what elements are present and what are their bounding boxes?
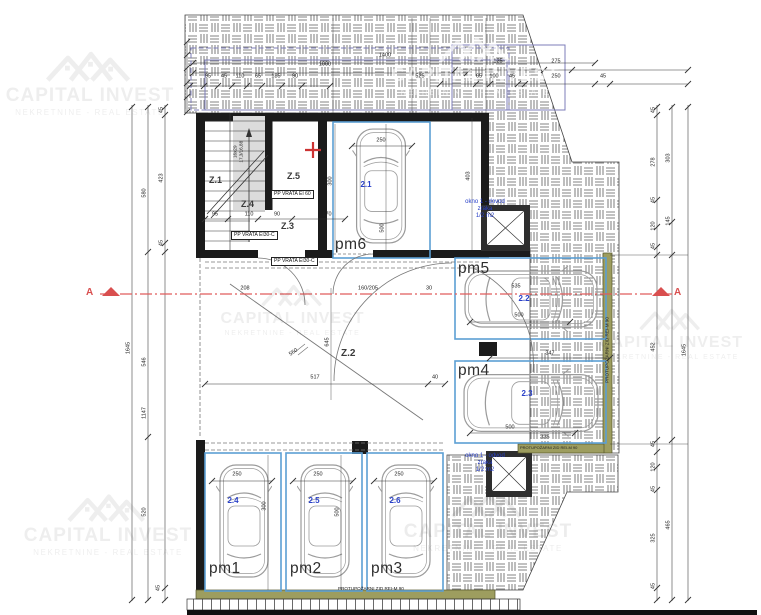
dimension-label: 1645 <box>126 342 132 354</box>
watermark: CAPITAL INVEST NEKRETNINE - REAL ESTATE <box>18 478 198 557</box>
dimension-label: 335 <box>540 435 549 441</box>
dimension-label: 403 <box>466 171 472 180</box>
watermark-title: CAPITAL INVEST <box>18 526 198 547</box>
dimension-label: 303 <box>666 153 672 162</box>
walkway <box>187 599 757 615</box>
dimension-label: 65 <box>255 74 261 80</box>
dimension-label: 278 <box>651 157 657 166</box>
section-marker-right <box>652 287 670 296</box>
dimension-label: 145 <box>666 216 672 225</box>
parking-label-pm6: pm6 <box>335 237 367 253</box>
dimension-label: 45 <box>651 486 657 492</box>
dimension-label: 120 <box>651 221 657 230</box>
dimension-label: 45 <box>600 74 606 80</box>
dimension-label: 250 <box>232 472 241 478</box>
dimension-label: 535 <box>511 284 520 290</box>
dimension-label: 45 <box>651 441 657 447</box>
watermark-subtitle: NEKRETNINE - REAL ESTATE <box>388 89 563 97</box>
window-label-exhaust: okno 1 - odvod zraka 1/2 m2 <box>450 453 520 475</box>
window-label-line: 1/2 m2 <box>450 213 520 220</box>
dimension-label: 275 <box>551 59 560 65</box>
parking-label-pm4: pm4 <box>458 363 490 379</box>
window-label-line: okno 1 - odvod <box>450 453 520 460</box>
room-label-z2: Z.2 <box>341 349 355 359</box>
dimension-label: 347 <box>545 351 554 357</box>
firewall-label-right: PROTUPOŽARNI ZID REI-M 90 <box>606 317 611 383</box>
watermark: CAPITAL INVEST NEKRETNINE - REAL ESTATE <box>205 272 380 337</box>
dimension-label: 65 <box>476 74 482 80</box>
dimension-label: 45 <box>651 243 657 249</box>
watermark-title: CAPITAL INVEST <box>205 310 380 328</box>
floor-plan-canvas: CAPITAL INVEST NEKRETNINE - REAL ESTATE … <box>0 0 761 615</box>
watermark-title: CAPITAL INVEST <box>0 86 180 107</box>
capital-invest-logo-icon <box>636 296 706 332</box>
dimension-label: 452 <box>651 342 657 351</box>
parking-label-pm1: pm1 <box>209 561 241 577</box>
dimension-label: 1147 <box>142 407 148 419</box>
section-letter-left: A <box>86 287 93 298</box>
dimension-label: 125 <box>493 59 502 65</box>
dimension-label: 100 <box>489 74 498 80</box>
capital-invest-logo-icon <box>42 34 138 84</box>
dimension-label: 250 <box>551 74 560 80</box>
watermark: CAPITAL INVEST NEKRETNINE - REAL ESTATE <box>388 22 563 97</box>
dimension-label: 500 <box>505 425 514 431</box>
parking-label-pm2: pm2 <box>290 561 322 577</box>
section-marker-left <box>102 287 120 296</box>
firewall-label-mid: PROTUPOŽARNI ZID REI-M 90 <box>520 446 577 450</box>
watermark-subtitle: NEKRETNINE - REAL ESTATE <box>0 109 180 117</box>
dimension-label: 95 <box>212 212 218 218</box>
dimension-label: 110 <box>236 74 245 80</box>
stairs-label-line: 17,3/16,88 <box>238 121 244 183</box>
stairs-label: 16x29 17,3/16,88 <box>232 121 243 183</box>
watermark-subtitle: NEKRETNINE - REAL ESTATE <box>205 330 380 337</box>
watermark-subtitle: NEKRETNINE - REAL ESTATE <box>398 545 578 553</box>
dimension-label: 90 <box>292 74 298 80</box>
dimension-label: 300 <box>328 176 334 185</box>
room-label-z5: Z.5 <box>287 172 300 181</box>
car-number-label: 2.3 <box>521 390 532 398</box>
car-number-label: 2.6 <box>389 497 400 505</box>
car-number-label: 2.1 <box>360 181 371 189</box>
dimension-label: 45 <box>509 74 515 80</box>
dimension-label: 45 <box>651 197 657 203</box>
dimension-label: 500 <box>514 313 523 319</box>
dimension-label: 465 <box>666 520 672 529</box>
dimension-label: 325 <box>651 533 657 542</box>
window-label-line: 1/2 m2 <box>450 467 520 474</box>
dimension-label: 120 <box>651 462 657 471</box>
parking-label-pm3: pm3 <box>371 561 403 577</box>
door-label-ei30c: PP VRATA EI30-C <box>271 257 318 266</box>
window-label-line: zraka <box>450 460 520 467</box>
column <box>479 342 497 356</box>
dimension-label: 90 <box>274 212 280 218</box>
dimension-label: 1645 <box>682 344 688 356</box>
dimension-label: 160/205 <box>358 286 378 292</box>
dimension-label: 500 <box>380 223 386 232</box>
room-label-z1: Z.1 <box>209 176 222 185</box>
dimension-label: 520 <box>142 507 148 516</box>
dimension-label: 110 <box>245 212 254 218</box>
dimension-label: 500 <box>335 507 341 516</box>
room-label-z4: Z.4 <box>241 200 254 209</box>
watermark: CAPITAL INVEST NEKRETNINE - REAL ESTATE <box>398 478 578 553</box>
dimension-label: 250 <box>313 472 322 478</box>
car-number-label: 2.5 <box>308 497 319 505</box>
dimension-label: 45 <box>159 240 165 246</box>
watermark-subtitle: NEKRETNINE - REAL ESTATE <box>18 549 198 557</box>
capital-invest-logo-icon <box>258 272 328 308</box>
dimension-label: 517 <box>310 375 319 381</box>
dimension-label: 645 <box>325 337 331 346</box>
parking-label-pm5: pm5 <box>458 261 490 277</box>
dimension-label: 45 <box>159 107 165 113</box>
dimension-label: 250 <box>376 138 385 144</box>
dimension-label: 250 <box>394 472 403 478</box>
window-label-supply: okno 1 - dovod zraka 1/2 m2 <box>450 199 520 221</box>
capital-invest-logo-icon <box>448 478 528 520</box>
dimension-label: 45 <box>156 585 162 591</box>
dimension-label: 170 <box>322 212 331 218</box>
dimension-label: 45 <box>651 107 657 113</box>
dimension-label: 208 <box>240 286 249 292</box>
room-label-z3: Z.3 <box>281 222 294 231</box>
car-number-label: 2.4 <box>227 497 238 505</box>
section-letter-right: A <box>674 287 681 298</box>
dimension-label: 45 <box>221 74 227 80</box>
dimension-label: 1400 <box>379 53 391 59</box>
dimension-label: 30 <box>426 286 432 292</box>
capital-invest-logo-icon <box>436 22 516 64</box>
dimension-label: 1000 <box>319 62 331 68</box>
column <box>352 441 368 454</box>
dimension-label: 525 <box>415 74 424 80</box>
car-number-label: 2.2 <box>518 295 529 303</box>
dimension-label: 40 <box>432 375 438 381</box>
door-label-ei30c: PP VRATA EI30-C <box>231 231 278 240</box>
firewall-label-bottom: PROTUPOŽARNI ZID REI-M 90 <box>338 587 404 592</box>
dimension-label: 185 <box>271 74 280 80</box>
dimension-label: 546 <box>142 357 148 366</box>
watermark-title: CAPITAL INVEST <box>398 522 578 543</box>
dimension-label: 45 <box>651 583 657 589</box>
window-label-line: zraka <box>450 206 520 213</box>
dimension-label: 95 <box>205 74 211 80</box>
dimension-label: 300 <box>262 501 268 510</box>
watermark: CAPITAL INVEST NEKRETNINE - REAL ESTATE <box>0 34 180 117</box>
capital-invest-logo-icon <box>63 478 153 524</box>
door-label-ei60: PP VRATA EI 60 <box>271 190 314 199</box>
dimension-label: 423 <box>159 173 165 182</box>
window-label-line: okno 1 - dovod <box>450 199 520 206</box>
dimension-label: 580 <box>142 188 148 197</box>
